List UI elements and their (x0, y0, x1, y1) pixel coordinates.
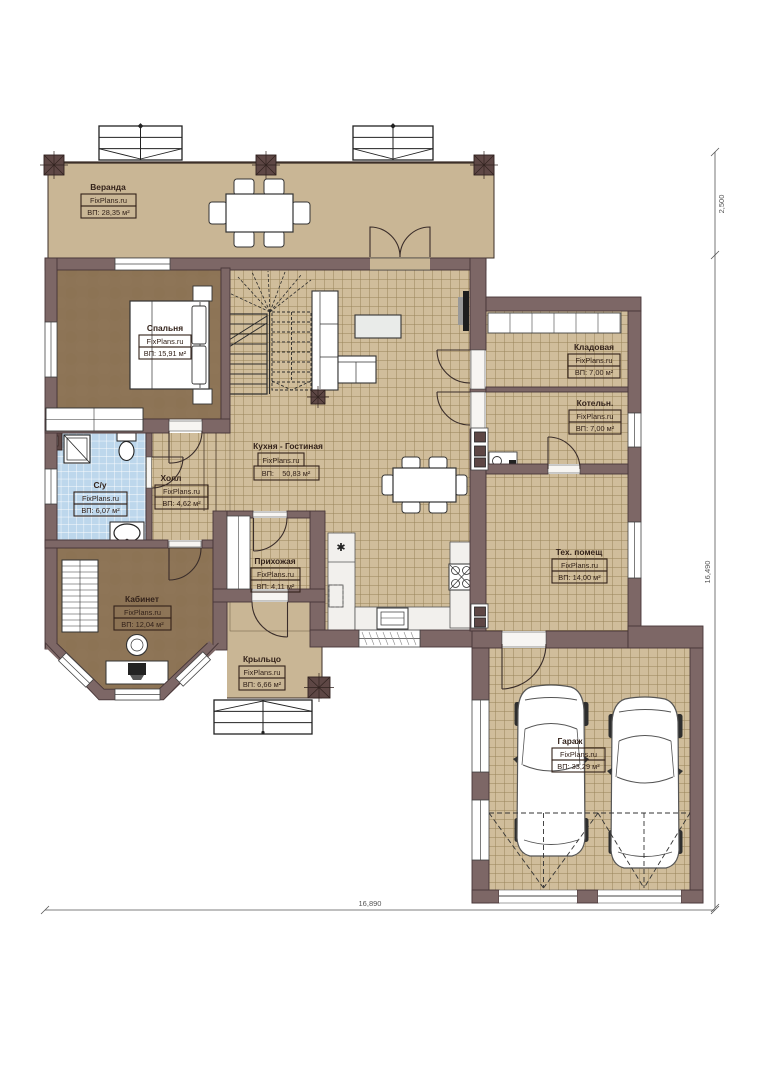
svg-text:✱: ✱ (336, 542, 345, 554)
svg-text:Кухня - Гостиная: Кухня - Гостиная (253, 441, 323, 451)
svg-text:Гараж: Гараж (557, 736, 582, 746)
svg-text:Холл: Холл (160, 473, 181, 483)
svg-text:16,890: 16,890 (359, 899, 382, 908)
svg-text:Кладовая: Кладовая (574, 342, 614, 352)
svg-text:FixPlans.ru: FixPlans.ru (263, 456, 300, 465)
svg-text:ВП: 7,00 м²: ВП: 7,00 м² (576, 424, 615, 433)
svg-text:Веранда: Веранда (90, 182, 126, 192)
svg-text:FixPlans.ru: FixPlans.ru (560, 750, 597, 759)
svg-text:FixPlans.ru: FixPlans.ru (257, 570, 294, 579)
svg-text:Крыльцо: Крыльцо (243, 654, 281, 664)
svg-text:FixPlans.ru: FixPlans.ru (90, 196, 127, 205)
svg-text:ВП: 7,00 м²: ВП: 7,00 м² (575, 368, 614, 377)
svg-text:Спальня: Спальня (147, 323, 183, 333)
svg-text:ВП: 14,00 м²: ВП: 14,00 м² (558, 573, 601, 582)
svg-text:ВП: 4,11 м²: ВП: 4,11 м² (257, 582, 295, 591)
svg-text:ВП: 6,07 м²: ВП: 6,07 м² (81, 506, 120, 515)
svg-text:FixPlans.ru: FixPlans.ru (561, 561, 598, 570)
svg-text:Котельн.: Котельн. (577, 398, 614, 408)
svg-text:ВП: 6,66 м²: ВП: 6,66 м² (243, 680, 282, 689)
svg-text:FixPlans.ru: FixPlans.ru (163, 487, 200, 496)
svg-text:FixPlans.ru: FixPlans.ru (147, 337, 184, 346)
svg-text:FixPlans.ru: FixPlans.ru (82, 494, 119, 503)
svg-text:FixPlans.ru: FixPlans.ru (124, 608, 161, 617)
svg-text:Кабинет: Кабинет (125, 594, 159, 604)
svg-text:Тех. помещ: Тех. помещ (556, 547, 603, 557)
svg-text:ВП: 15,91 м²: ВП: 15,91 м² (144, 349, 187, 358)
svg-text:2,500: 2,500 (717, 195, 726, 214)
svg-text:ВП: 50,83 м²: ВП: 50,83 м² (262, 469, 311, 478)
svg-text:ВП: 28,35 м²: ВП: 28,35 м² (87, 208, 130, 217)
svg-text:ВП: 4,62 м²: ВП: 4,62 м² (162, 499, 201, 508)
svg-text:ВП: 33,29 м²: ВП: 33,29 м² (557, 762, 600, 771)
svg-text:FixPlans.ru: FixPlans.ru (244, 668, 281, 677)
svg-text:Прихожая: Прихожая (254, 556, 295, 566)
svg-text:ВП: 12,04 м²: ВП: 12,04 м² (121, 620, 164, 629)
svg-text:С/у: С/у (93, 480, 106, 490)
svg-text:FixPlans.ru: FixPlans.ru (576, 356, 613, 365)
svg-text:16,490: 16,490 (703, 561, 712, 584)
svg-text:FixPlans.ru: FixPlans.ru (577, 412, 614, 421)
